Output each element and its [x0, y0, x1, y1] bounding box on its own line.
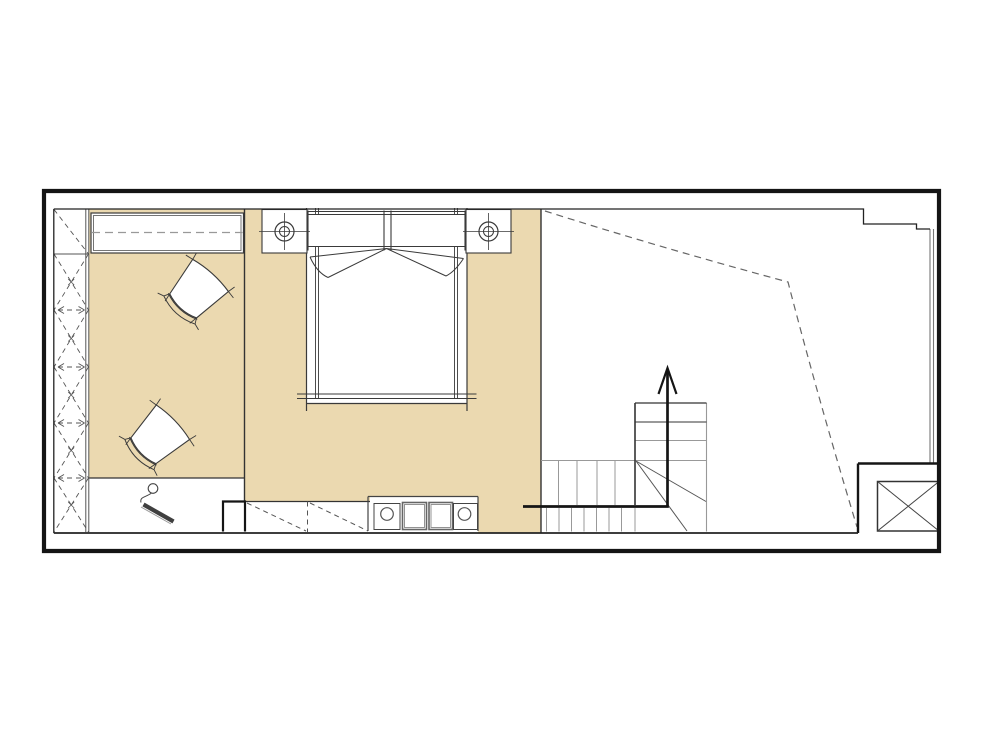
stair-flight-line [523, 371, 668, 507]
wardrobe-x-pattern [54, 254, 89, 532]
dresser [91, 213, 244, 253]
wardrobe-left [54, 209, 89, 532]
floor-plan-drawing [0, 0, 1000, 748]
wall-lamp-desk-area [141, 484, 174, 524]
staircase [523, 368, 707, 532]
double-bed [297, 208, 477, 411]
wardrobe-width-arrows [58, 307, 85, 482]
floor-plan-canvas [0, 0, 1000, 748]
stair-outline [635, 403, 707, 505]
nightstand-right [463, 210, 514, 254]
lamp-head [148, 484, 158, 494]
ceiling-break-line [545, 211, 857, 527]
stair-winders [636, 461, 706, 531]
window-right [930, 229, 934, 464]
duct-shaft [858, 464, 939, 534]
wardrobe-center-marks [68, 279, 74, 508]
lamp-cord [141, 493, 152, 503]
dresser-body [91, 213, 244, 253]
unit-box-1 [403, 503, 427, 530]
lamp-arm-bar [144, 505, 174, 522]
unit-box-2 [429, 503, 453, 530]
wardrobe-diagonal-top [54, 210, 89, 255]
vanity-counter [368, 497, 478, 532]
lower-closet [245, 502, 370, 533]
nightstand-left [259, 210, 310, 254]
stub-wall [223, 502, 245, 532]
